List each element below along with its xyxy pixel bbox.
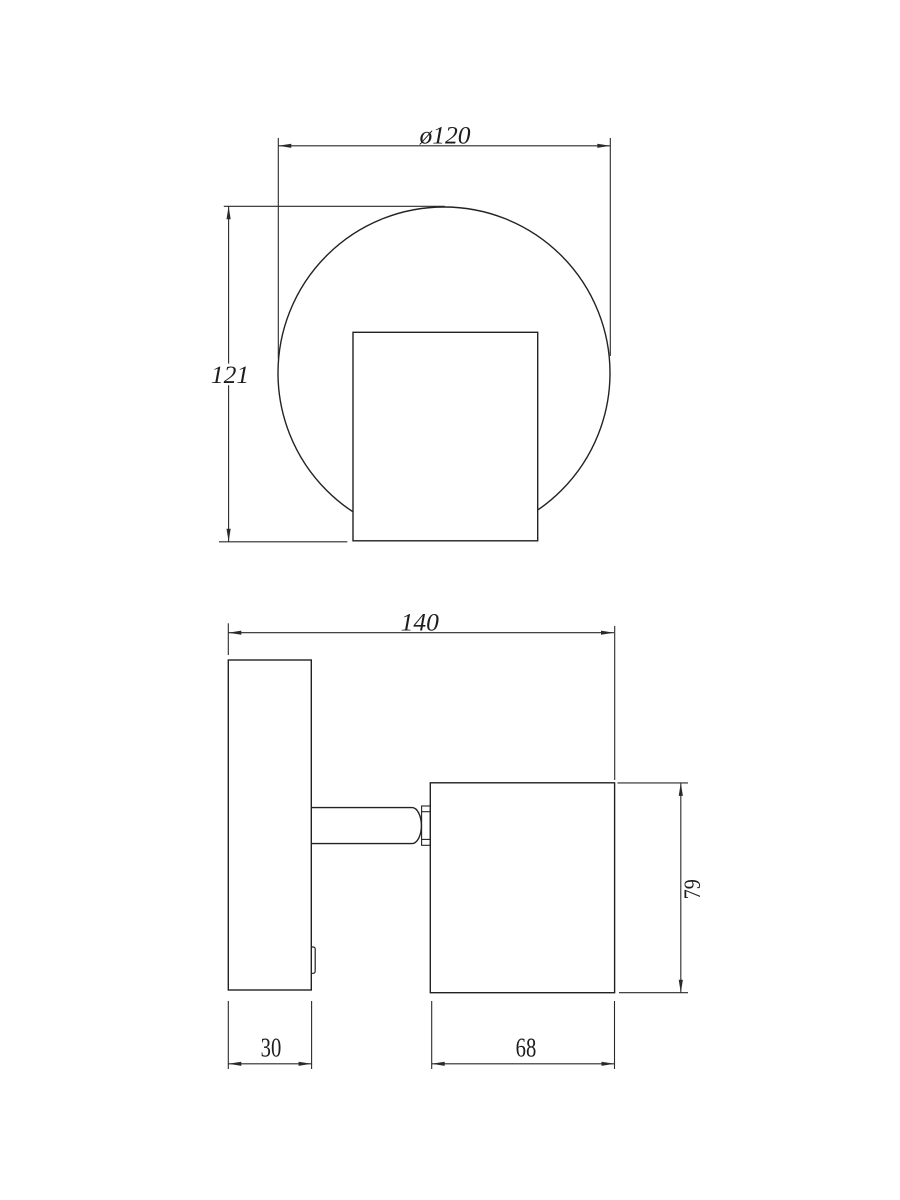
svg-text:68: 68 [516, 1033, 537, 1064]
svg-text:ø120: ø120 [419, 121, 471, 150]
svg-text:140: 140 [401, 608, 440, 637]
svg-text:79: 79 [680, 879, 705, 899]
svg-text:121: 121 [211, 360, 249, 389]
svg-text:30: 30 [261, 1033, 282, 1064]
